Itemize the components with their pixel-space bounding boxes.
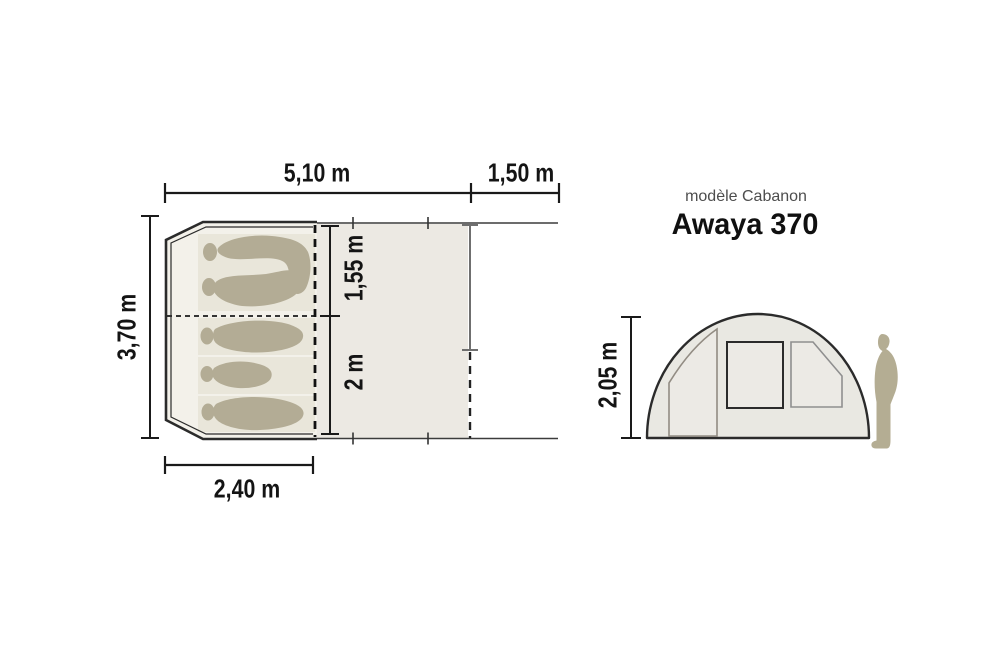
sideview-elevation xyxy=(621,314,898,449)
model-title: Awaya 370 xyxy=(672,208,819,242)
dimension-line-width xyxy=(141,216,159,438)
dim-label-height: 2,05 m xyxy=(593,342,624,408)
sleeping-bag-icon xyxy=(203,243,217,261)
floorplan-top-view xyxy=(141,183,559,474)
dim-label-inner-front: 1,55 m xyxy=(339,235,370,301)
sleeping-bag-icon xyxy=(201,366,214,382)
model-subtitle: modèle Cabanon xyxy=(685,188,807,206)
diagram-canvas xyxy=(0,0,1000,654)
sleeping-bag-icon xyxy=(202,404,215,421)
dim-label-extension: 1,50 m xyxy=(488,158,554,189)
sleeping-bag-icon xyxy=(201,328,214,345)
dimension-line-bedroom xyxy=(165,456,313,474)
dim-label-total-length: 5,10 m xyxy=(284,158,350,189)
dim-label-width: 3,70 m xyxy=(112,294,143,360)
dimension-line-height xyxy=(621,317,641,438)
sleeping-bag-icon xyxy=(213,321,303,353)
dim-label-bedroom-length: 2,40 m xyxy=(214,474,280,505)
tent-spec-diagram: 5,10 m 1,50 m 3,70 m 1,55 m 2 m 2,40 m 2… xyxy=(0,0,1000,654)
side-middle-window xyxy=(727,342,783,408)
person-icon xyxy=(871,334,897,449)
dim-label-inner-back: 2 m xyxy=(339,354,370,391)
